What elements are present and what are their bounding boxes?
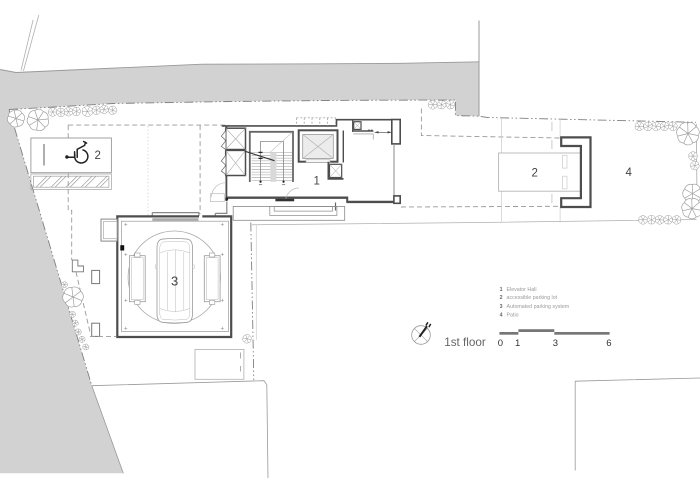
svg-text:3: 3 [553,338,558,349]
svg-text:6: 6 [606,338,611,349]
svg-text:1st floor: 1st floor [444,336,486,349]
svg-text:1: 1 [314,176,320,188]
svg-text:4: 4 [626,167,633,179]
svg-text:4Patio: 4Patio [500,313,519,319]
svg-text:1: 1 [515,338,520,349]
svg-text:3Automated parking system: 3Automated parking system [500,304,570,310]
svg-text:0: 0 [498,338,503,349]
svg-text:2: 2 [532,168,538,180]
svg-text:2accessible parking lot: 2accessible parking lot [500,295,558,301]
svg-text:2: 2 [95,150,101,162]
svg-text:3: 3 [171,274,178,289]
